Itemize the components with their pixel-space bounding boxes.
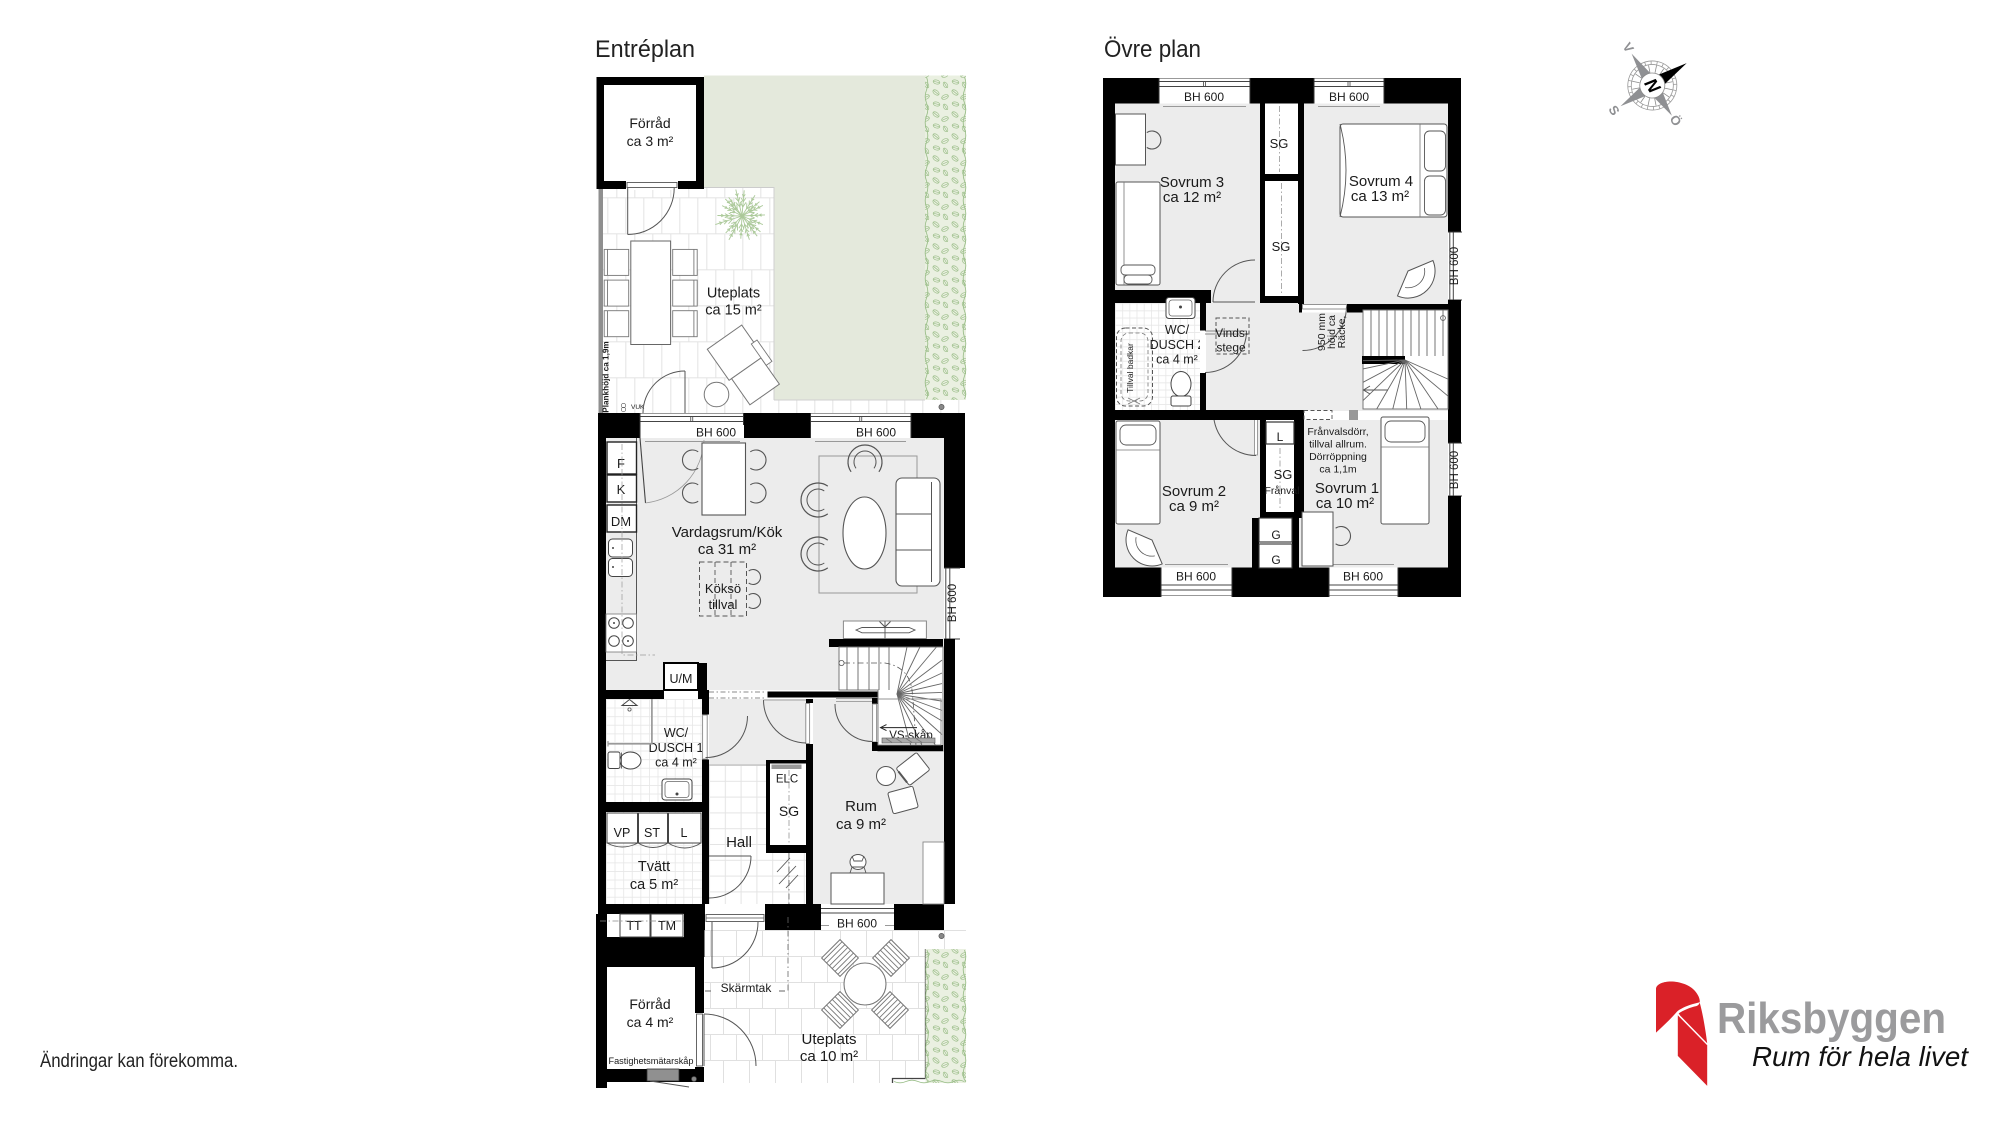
svg-text:BH 600: BH 600 (1176, 570, 1216, 584)
svg-text:Rum för hela livet: Rum för hela livet (1752, 1041, 1969, 1072)
svg-text:Vardagsrum/Kök: Vardagsrum/Kök (672, 524, 783, 541)
svg-text:BH 600: BH 600 (856, 426, 896, 440)
svg-text:BH 600: BH 600 (1449, 451, 1461, 489)
svg-text:stege: stege (1216, 341, 1246, 355)
svg-text:L: L (1277, 430, 1284, 444)
svg-text:BH 600: BH 600 (837, 917, 877, 931)
svg-text:Rum: Rum (845, 798, 877, 815)
svg-text:ca 9 m²: ca 9 m² (1169, 498, 1219, 515)
svg-text:Dörröppning: Dörröppning (1309, 451, 1367, 463)
svg-text:Frånval: Frånval (1264, 485, 1299, 497)
svg-text:Ändringar kan förekomma.: Ändringar kan förekomma. (40, 1051, 238, 1072)
svg-text:SG: SG (1274, 467, 1293, 482)
svg-text:BH 600: BH 600 (1329, 90, 1369, 104)
svg-text:Fastighetsmätarskåp: Fastighetsmätarskåp (609, 1056, 694, 1066)
svg-text:Hall: Hall (726, 834, 752, 851)
svg-text:ca 9 m²: ca 9 m² (836, 816, 886, 833)
svg-text:SG: SG (1270, 136, 1289, 151)
svg-text:Tillval badkar: Tillval badkar (1125, 343, 1135, 393)
svg-text:Förråd: Förråd (629, 996, 670, 1012)
svg-text:SG: SG (1272, 239, 1291, 254)
svg-text:tillval allrum.: tillval allrum. (1309, 439, 1367, 451)
svg-text:Köksö: Köksö (705, 581, 741, 596)
svg-text:ca 10 m²: ca 10 m² (1316, 495, 1374, 512)
svg-text:ca 5 m²: ca 5 m² (630, 877, 679, 893)
svg-text:BH 600: BH 600 (1184, 90, 1224, 104)
svg-text:tillval: tillval (709, 597, 738, 612)
svg-text:DUSCH 2: DUSCH 2 (1150, 338, 1205, 352)
svg-text:F: F (617, 456, 625, 471)
svg-text:Skärmtak: Skärmtak (721, 981, 773, 995)
svg-text:Plankhöjd ca 1,9m: Plankhöjd ca 1,9m (602, 341, 611, 412)
svg-text:G: G (1271, 553, 1280, 567)
svg-text:K: K (617, 482, 626, 497)
svg-text:ca 4 m²: ca 4 m² (627, 1014, 674, 1030)
svg-text:ca 10 m²: ca 10 m² (800, 1048, 858, 1065)
svg-text:Uteplats: Uteplats (801, 1031, 856, 1048)
svg-text:ca 13 m²: ca 13 m² (1351, 188, 1409, 205)
svg-text:Uteplats: Uteplats (707, 286, 760, 302)
svg-text:950 mm: 950 mm (1316, 313, 1328, 351)
svg-text:BH 600: BH 600 (696, 426, 736, 440)
svg-text:WC/: WC/ (1165, 323, 1190, 337)
svg-text:ca 3 m²: ca 3 m² (627, 133, 674, 149)
svg-text:G: G (1271, 528, 1280, 542)
svg-text:ELC: ELC (776, 774, 798, 786)
svg-text:Tvätt: Tvätt (638, 859, 670, 875)
svg-text:ca 4 m²: ca 4 m² (655, 756, 697, 770)
svg-text:Övre plan: Övre plan (1104, 36, 1201, 63)
svg-text:BH 600: BH 600 (1449, 247, 1461, 285)
svg-text:ca 31 m²: ca 31 m² (698, 541, 756, 558)
svg-text:VP: VP (614, 826, 631, 840)
svg-text:U/M: U/M (670, 672, 693, 686)
svg-text:Riksbyggen: Riksbyggen (1717, 994, 1946, 1043)
svg-text:WC/: WC/ (664, 726, 689, 740)
svg-text:Frånvalsdörr,: Frånvalsdörr, (1307, 426, 1368, 438)
svg-text:ST: ST (644, 826, 660, 840)
svg-text:Förråd: Förråd (629, 115, 670, 131)
svg-text:BH 600: BH 600 (1343, 570, 1383, 584)
svg-text:DM: DM (611, 514, 631, 529)
svg-text:Vinds-: Vinds- (1215, 326, 1249, 340)
svg-text:ca 12 m²: ca 12 m² (1163, 189, 1221, 206)
svg-text:BH 600: BH 600 (947, 584, 959, 622)
svg-text:ca 1,1m: ca 1,1m (1319, 464, 1357, 476)
svg-text:DUSCH 1: DUSCH 1 (649, 741, 704, 755)
svg-text:SG: SG (779, 803, 799, 819)
svg-text:ca 4 m²: ca 4 m² (1156, 353, 1198, 367)
svg-text:Entréplan: Entréplan (595, 36, 695, 63)
svg-text:ca 15 m²: ca 15 m² (705, 303, 762, 319)
svg-text:L: L (681, 826, 688, 840)
